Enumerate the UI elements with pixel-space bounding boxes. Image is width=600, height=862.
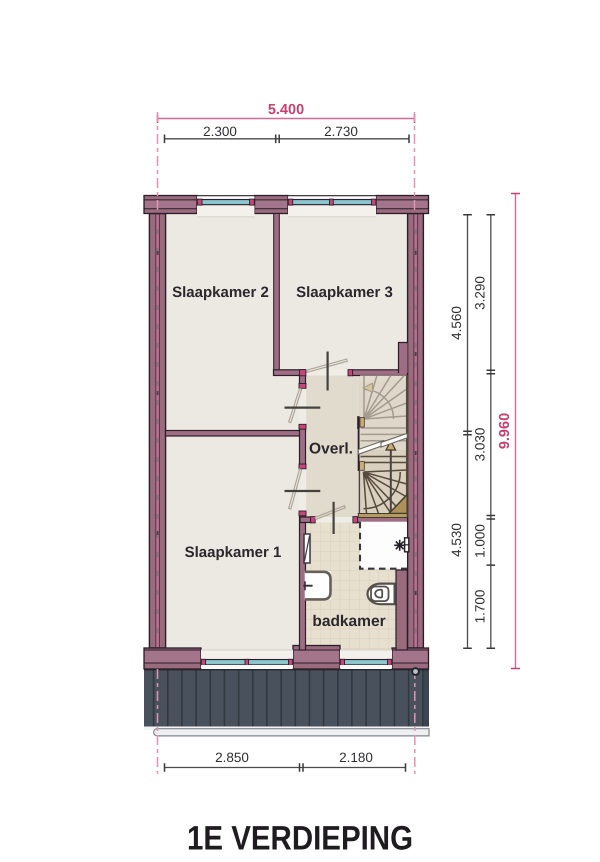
svg-text:Overl.: Overl. xyxy=(309,441,353,458)
svg-text:3.030: 3.030 xyxy=(472,428,487,462)
svg-text:Slaapkamer 2: Slaapkamer 2 xyxy=(172,284,269,301)
svg-text:4.560: 4.560 xyxy=(449,306,464,340)
svg-text:Slaapkamer 1: Slaapkamer 1 xyxy=(185,544,282,561)
svg-text:1E VERDIEPING: 1E VERDIEPING xyxy=(187,820,413,858)
svg-text:9.960: 9.960 xyxy=(497,413,513,449)
svg-text:2.730: 2.730 xyxy=(324,124,358,139)
svg-text:2.180: 2.180 xyxy=(339,750,373,765)
svg-text:5.400: 5.400 xyxy=(268,102,304,118)
svg-text:1.000: 1.000 xyxy=(472,524,487,558)
svg-text:3.290: 3.290 xyxy=(472,276,487,310)
svg-text:2.300: 2.300 xyxy=(203,124,237,139)
svg-text:4.530: 4.530 xyxy=(449,523,464,557)
svg-text:1.700: 1.700 xyxy=(472,590,487,624)
svg-text:badkamer: badkamer xyxy=(312,613,385,630)
svg-text:Slaapkamer 3: Slaapkamer 3 xyxy=(296,284,393,301)
svg-text:2.850: 2.850 xyxy=(215,750,249,765)
